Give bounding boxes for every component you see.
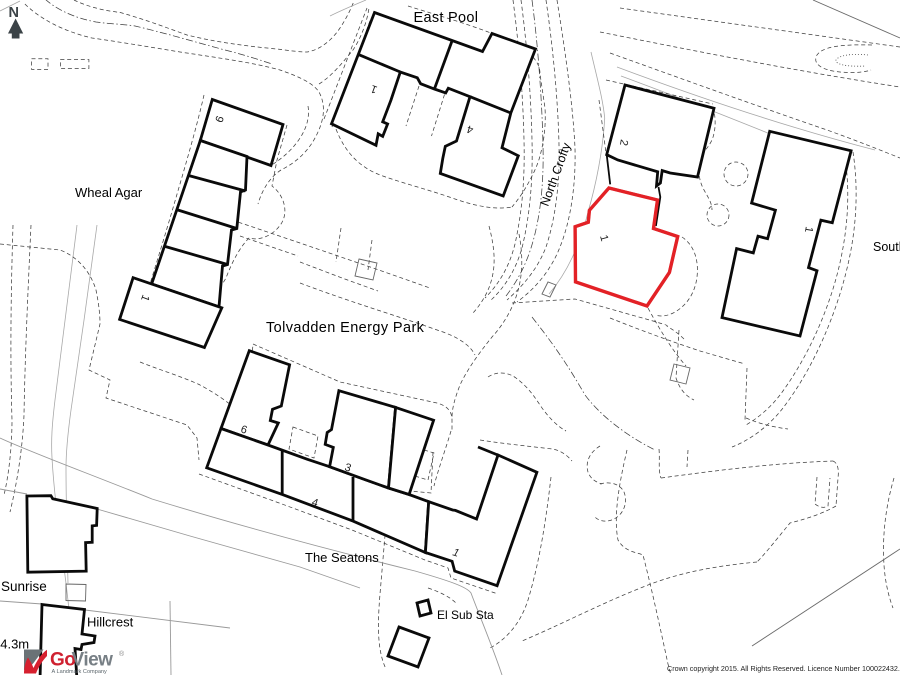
svg-text:A Landmark Company: A Landmark Company: [52, 669, 108, 675]
svg-text:View: View: [72, 650, 114, 671]
svg-text:Hillcrest: Hillcrest: [87, 615, 134, 630]
svg-text:®: ®: [119, 650, 125, 658]
svg-text:Tolvadden Energy Park: Tolvadden Energy Park: [266, 320, 425, 336]
svg-text:East Pool: East Pool: [414, 10, 479, 26]
svg-text:N: N: [9, 5, 19, 21]
svg-text:Wheal Agar: Wheal Agar: [75, 185, 143, 200]
svg-text:The Seatons: The Seatons: [305, 550, 379, 565]
svg-text:South Crofty: South Crofty: [873, 240, 900, 254]
svg-text:Sunrise: Sunrise: [1, 579, 47, 594]
svg-text:44.3m: 44.3m: [0, 637, 29, 652]
svg-text:Crown copyright 2015. All Righ: Crown copyright 2015. All Rights Reserve…: [667, 664, 900, 673]
svg-text:El Sub Sta: El Sub Sta: [437, 608, 494, 622]
